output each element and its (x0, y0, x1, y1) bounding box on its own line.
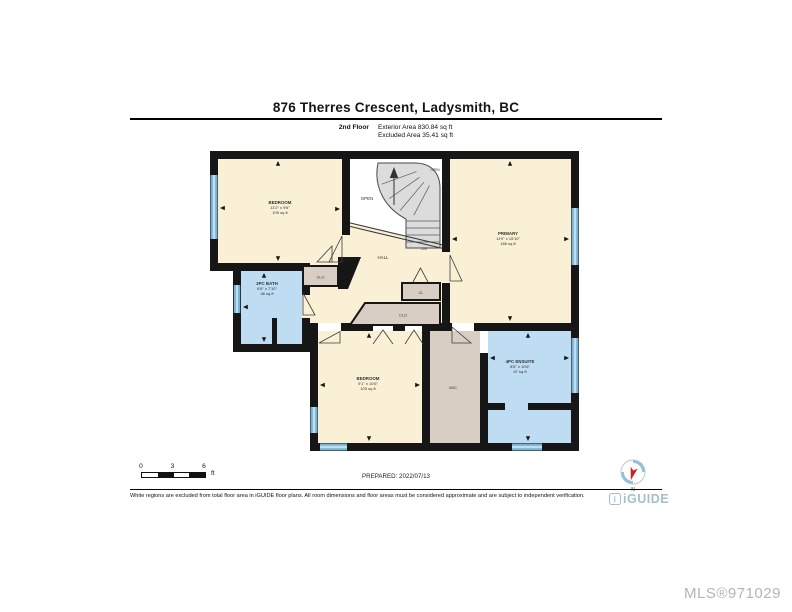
prepared-date: PREPARED: 2022/07/13 (130, 473, 662, 480)
wic-label: WIC (449, 385, 457, 390)
window-bedroom2-left (311, 407, 318, 433)
iguide-logo-icon: i (609, 493, 621, 505)
hall-label: HALL (378, 255, 390, 260)
bath-area: 46 sq ft (260, 291, 274, 296)
mls-number: MLS®971029 (684, 585, 781, 602)
title-divider (130, 118, 662, 120)
outside-patch (210, 271, 233, 361)
clo-center-label: CLO (399, 314, 407, 318)
window-bedroom1-left (211, 175, 218, 239)
window-bath-left (234, 285, 240, 313)
scale-tick-0: 0 (139, 463, 143, 470)
exterior-area: Exterior Area 830.84 sq ft (378, 124, 453, 132)
dn-label: DN (421, 247, 427, 251)
room-ensuite (488, 331, 571, 443)
primary-area: 186 sq ft (500, 241, 516, 246)
open-label: OPEN (361, 196, 373, 201)
floor-areas: Exterior Area 830.84 sq ft Excluded Area… (378, 124, 453, 140)
excluded-area: Excluded Area 35.41 sq ft (378, 132, 453, 140)
floor-info: 2nd Floor Exterior Area 830.84 sq ft Exc… (130, 124, 662, 140)
clo-left-label: CLO (317, 276, 325, 280)
floor-plan: BEDROOM 11'2" x 9'6" 109 sq ft PRIMARY 1… (200, 145, 590, 460)
bedroom1-area: 109 sq ft (272, 210, 288, 215)
floorplan-page: 876 Therres Crescent, Ladysmith, BC 2nd … (0, 0, 792, 612)
page-title: 876 Therres Crescent, Ladysmith, BC (130, 100, 662, 115)
open-small-label: OPEN (430, 168, 440, 172)
window-bedroom2-bottom (320, 444, 347, 451)
window-primary-right (572, 208, 579, 265)
scale-tick-3: 3 (171, 463, 175, 470)
scale-tick-6: 6 (202, 463, 206, 470)
window-ensuite-right (572, 338, 579, 393)
disclaimer-text: White regions are excluded from total fl… (130, 493, 585, 499)
iguide-logo-text: iGUIDE (623, 492, 669, 506)
iguide-logo: i iGUIDE (609, 492, 669, 506)
footer-divider (130, 489, 662, 490)
closet-clo-center (350, 303, 440, 325)
ensuite-area: 67 sq ft (513, 369, 527, 374)
cl-label: CL (419, 291, 424, 295)
floor-label: 2nd Floor (339, 124, 369, 140)
bedroom2-area: 103 sq ft (360, 386, 376, 391)
window-ensuite-bottom (512, 444, 542, 451)
